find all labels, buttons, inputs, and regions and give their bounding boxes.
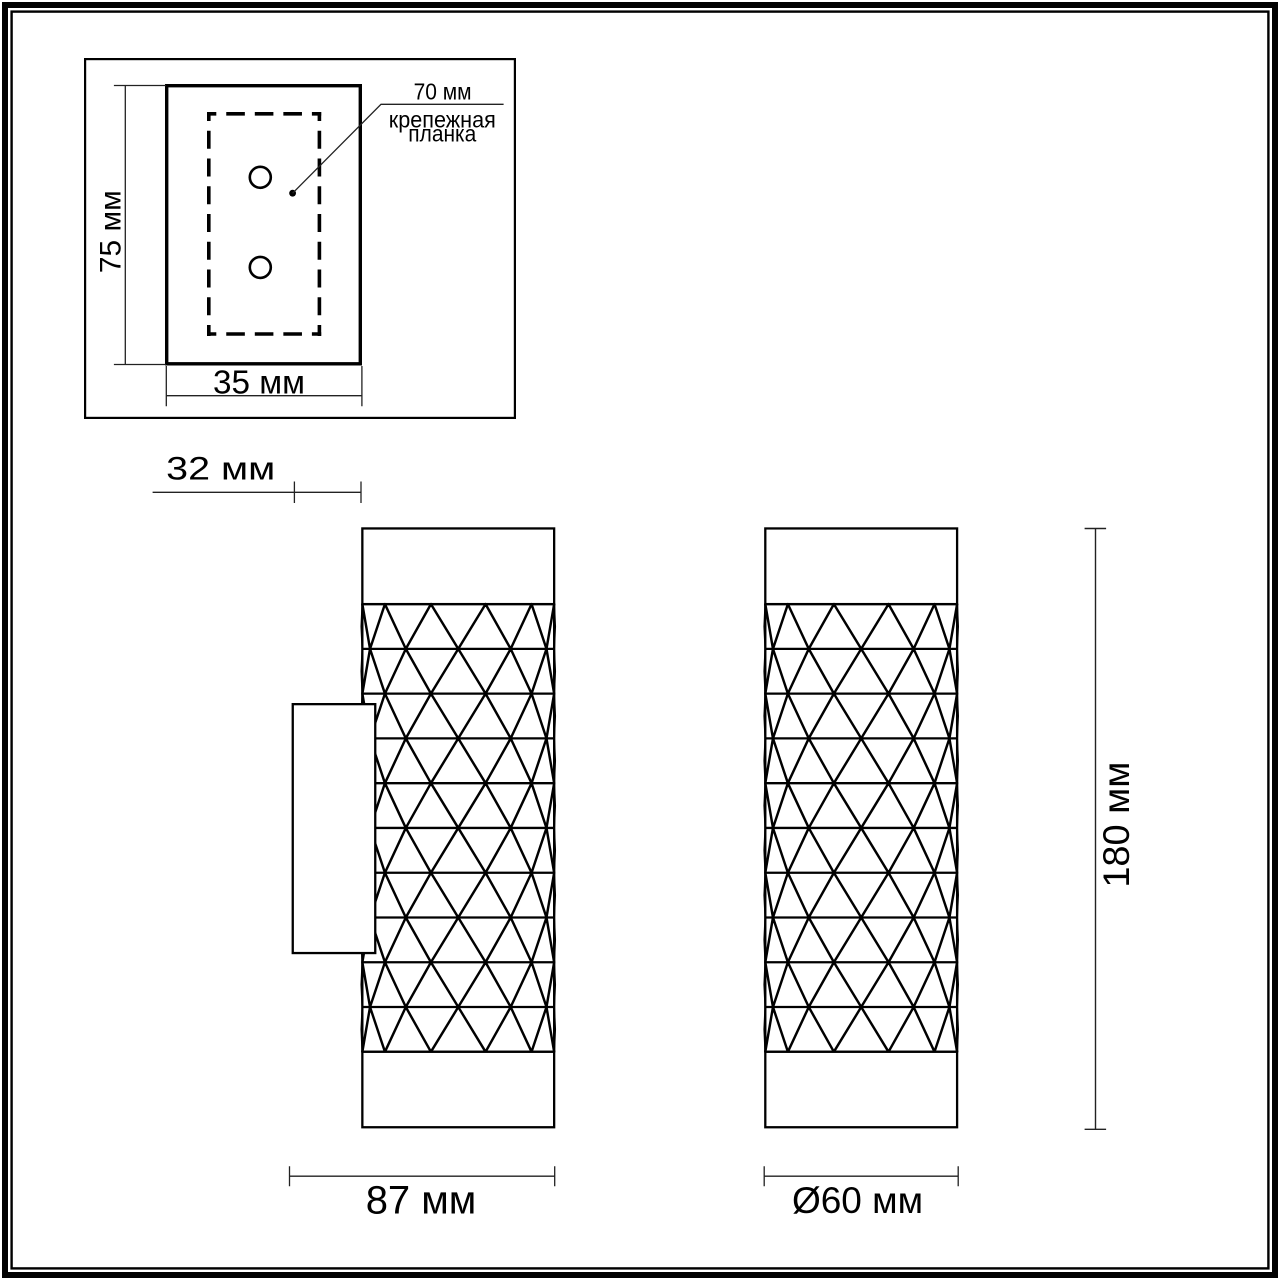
svg-text:70 мм: 70 мм: [414, 78, 472, 104]
svg-text:планка: планка: [408, 121, 476, 147]
svg-text:87 мм: 87 мм: [366, 1179, 477, 1223]
svg-text:180 мм: 180 мм: [1096, 762, 1137, 888]
svg-text:75 мм: 75 мм: [94, 190, 127, 273]
svg-text:32 мм: 32 мм: [166, 451, 275, 487]
svg-text:Ø60 мм: Ø60 мм: [792, 1180, 923, 1221]
svg-text:35 мм: 35 мм: [213, 363, 305, 400]
